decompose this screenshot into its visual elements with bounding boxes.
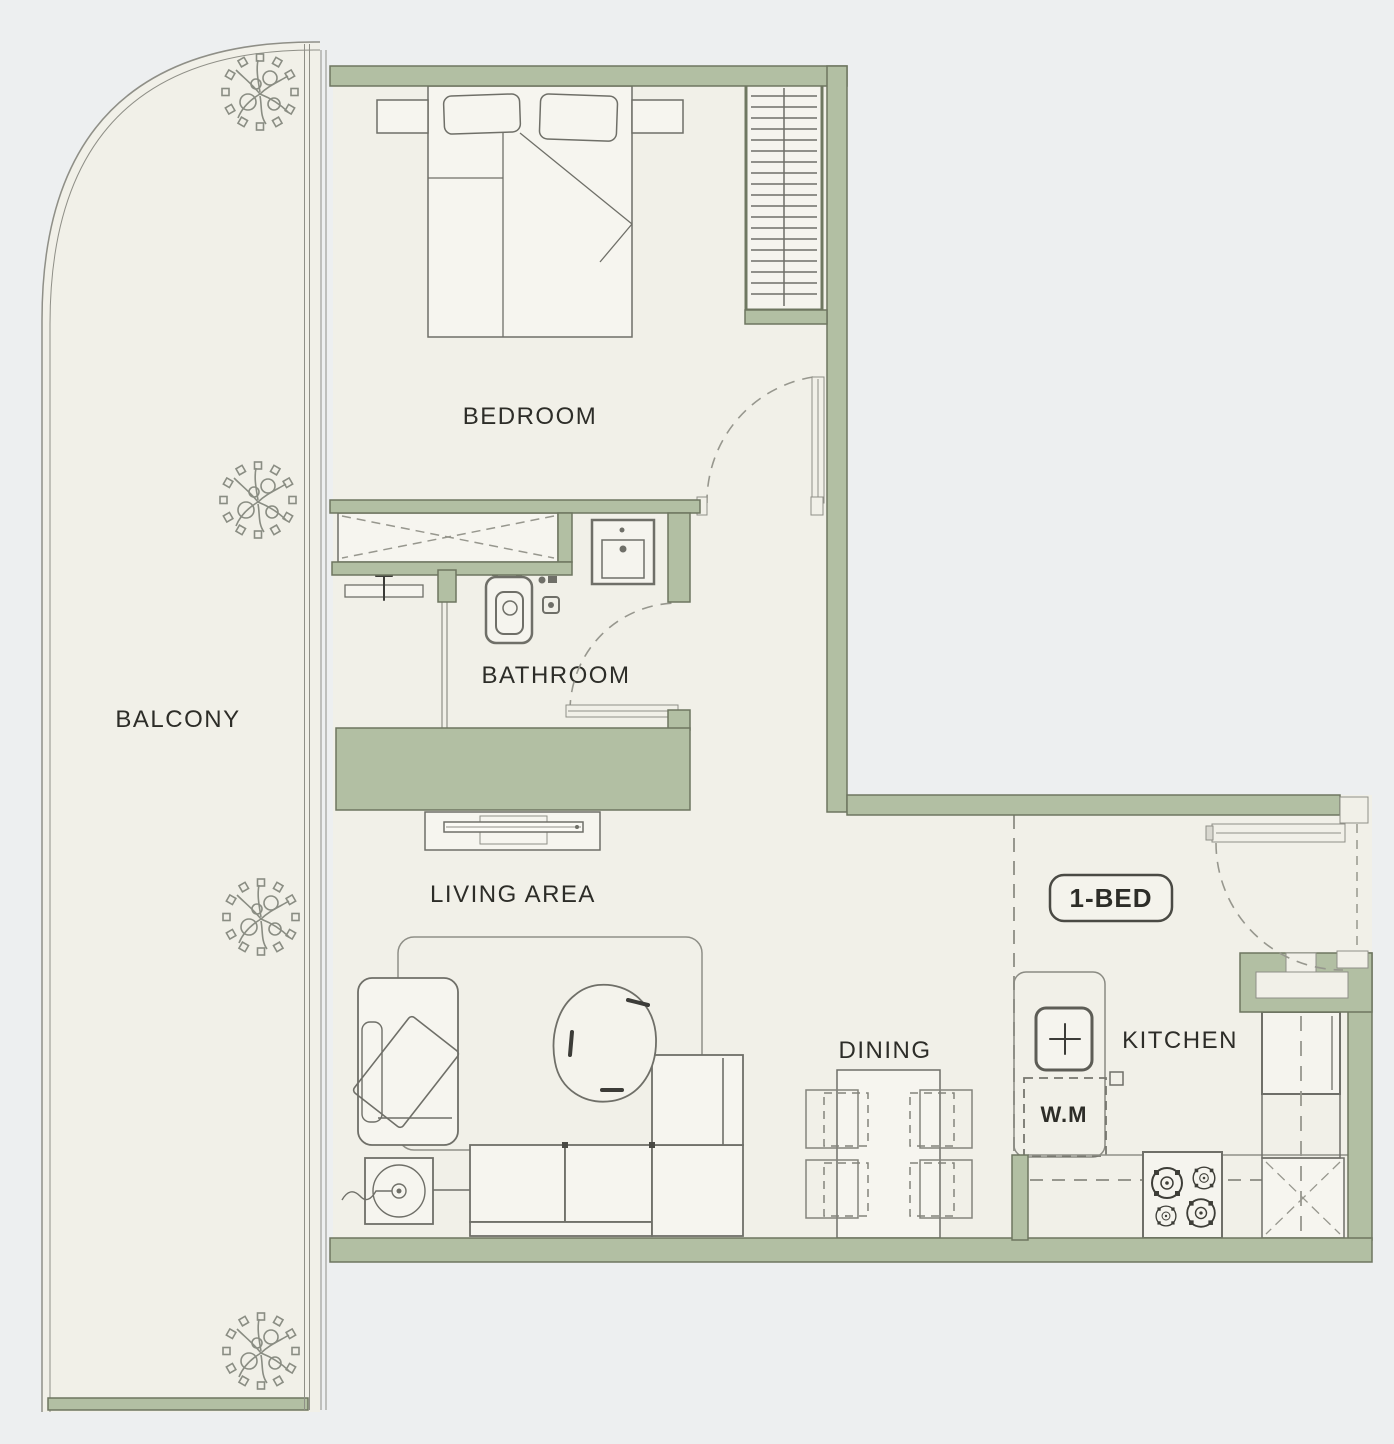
washing-machine-label: W.M: [1041, 1102, 1088, 1127]
balcony: BALCONY: [42, 42, 326, 1412]
coffee-table: [554, 985, 657, 1102]
wall-wardrobe-stub: [745, 310, 827, 324]
corner-cabinet: [1262, 1158, 1344, 1238]
kitchen-sink-icon: [1036, 1008, 1092, 1070]
armchair: [352, 978, 460, 1145]
unit-type-label: 1-BED: [1069, 883, 1152, 913]
floor-plan: BALCONY: [0, 0, 1394, 1444]
bed: [428, 86, 632, 337]
wall-kitchen-stub: [1012, 1155, 1028, 1240]
wardrobe: [746, 84, 822, 310]
dining-table: [837, 1070, 940, 1238]
toilet-icon: [486, 571, 532, 643]
pillow: [443, 94, 520, 135]
balcony-end-wall: [48, 1398, 308, 1410]
bathroom-label: BATHROOM: [482, 662, 631, 689]
pillow: [539, 94, 618, 142]
wall-bathroom-right: [668, 513, 690, 602]
bedroom-label: BEDROOM: [463, 403, 598, 430]
sink-icon: [592, 520, 654, 584]
stove-icon: [1143, 1152, 1222, 1238]
bathroom-closet: [338, 513, 558, 562]
unit-type-badge: 1-BED: [1050, 875, 1172, 921]
balcony-label: BALCONY: [115, 706, 240, 733]
wall-top: [330, 66, 847, 86]
tv-unit: [425, 812, 600, 850]
floor-plan-page: BALCONY: [0, 0, 1394, 1444]
wall-hall-top: [847, 795, 1340, 815]
dining-label: DINING: [839, 1037, 932, 1064]
living-area-label: LIVING AREA: [430, 881, 596, 908]
wall-bathroom-living: [336, 728, 690, 810]
wall-bathroom-top: [330, 500, 700, 513]
sofa-chaise: [652, 1055, 743, 1145]
kitchen-label: KITCHEN: [1122, 1027, 1238, 1054]
wall-bottom: [330, 1238, 1372, 1262]
nightstand: [377, 100, 428, 133]
nightstand: [632, 100, 683, 133]
wall-bedroom-right: [827, 66, 847, 812]
